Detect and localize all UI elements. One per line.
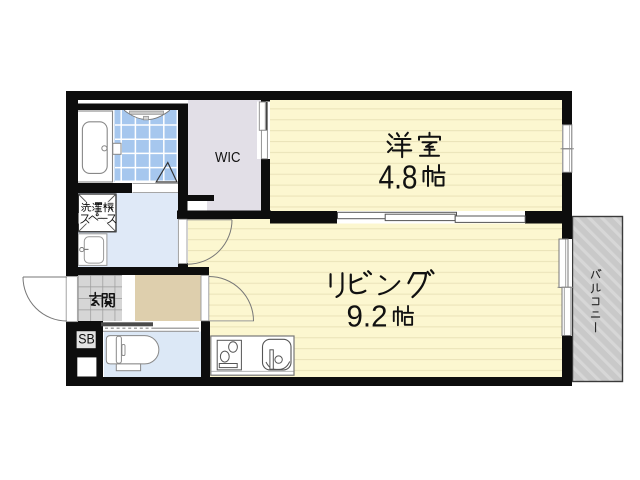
svg-text:9.2: 9.2: [347, 299, 388, 334]
svg-text:4.8: 4.8: [379, 159, 418, 196]
svg-text:WIC: WIC: [215, 149, 241, 166]
svg-text:SB: SB: [78, 332, 95, 347]
